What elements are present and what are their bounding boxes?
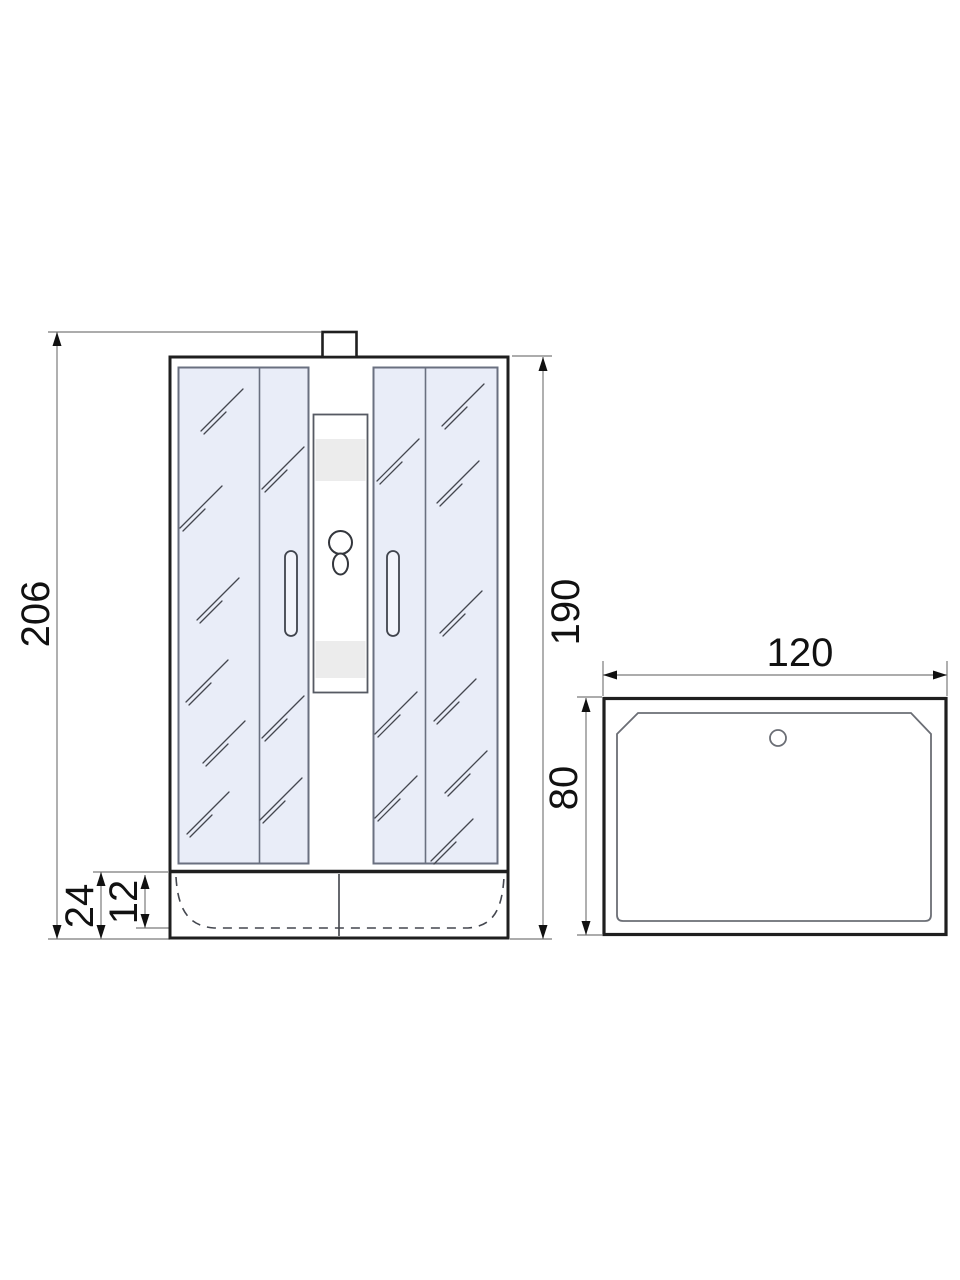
arrowhead-up <box>582 698 591 712</box>
dimension-depth: 80 <box>542 698 591 935</box>
shower-panel-band-top <box>316 439 366 481</box>
dimension-label-tray-height: 24 <box>58 884 102 929</box>
arrowhead-down <box>582 921 591 935</box>
shower-panel <box>314 415 368 693</box>
door-handle-right <box>387 551 399 636</box>
door-handle-left <box>285 551 297 636</box>
mixer-lever <box>333 554 348 575</box>
shower-panel-band-bottom <box>316 641 366 678</box>
dimension-width: 120 <box>603 631 947 680</box>
roof-box <box>323 332 357 357</box>
drawing-canvas: 206 190 24 12 <box>0 0 960 1280</box>
drain-hole <box>770 730 786 746</box>
dimension-label-depth: 80 <box>542 766 586 811</box>
dimension-tray-depth: 12 <box>102 875 150 928</box>
dimension-label-tray-depth: 12 <box>102 880 146 925</box>
dimension-label-total-height: 206 <box>14 581 58 648</box>
dimension-label-glass-height: 190 <box>544 579 588 646</box>
arrowhead-up <box>539 357 548 371</box>
arrowhead-up <box>53 332 62 346</box>
arrowhead-right <box>933 671 947 680</box>
mixer-knob <box>329 531 352 554</box>
dimension-label-width: 120 <box>767 631 834 675</box>
shower-cabin-drawing: 206 190 24 12 <box>0 0 960 1280</box>
dimension-tray-height: 24 <box>58 872 106 939</box>
arrowhead-down <box>539 925 548 939</box>
top-view: 120 80 <box>542 631 947 935</box>
front-view: 206 190 24 12 <box>14 332 588 939</box>
arrowhead-left <box>603 671 617 680</box>
dimension-glass-height: 190 <box>539 357 589 939</box>
dimension-total-height: 206 <box>14 332 62 939</box>
